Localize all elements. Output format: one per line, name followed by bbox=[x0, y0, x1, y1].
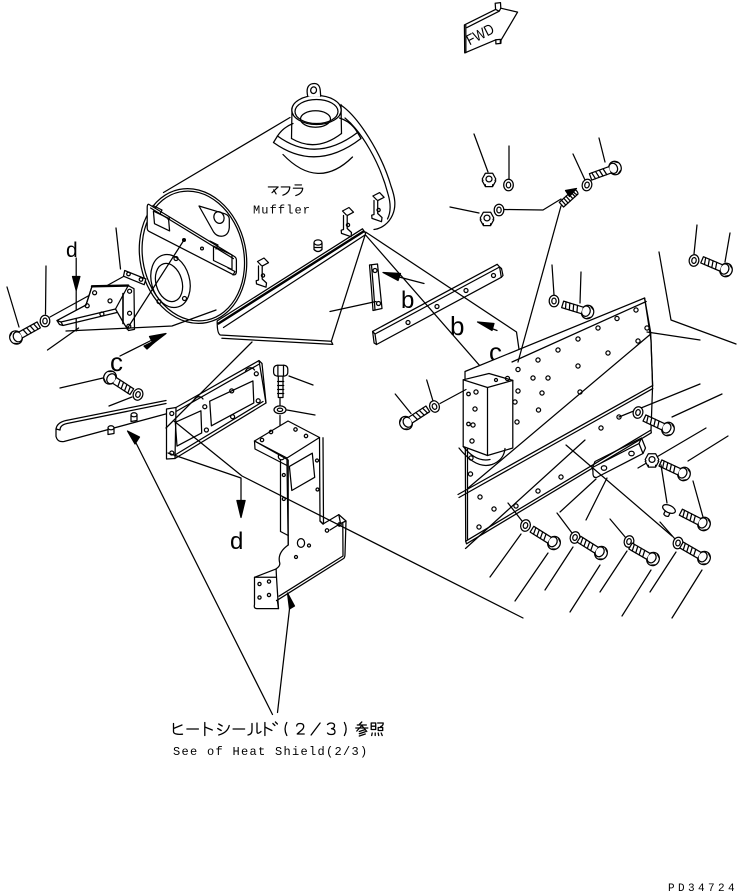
svg-text:d: d bbox=[230, 528, 243, 555]
svg-text:PD34724: PD34724 bbox=[668, 883, 737, 892]
svg-text:See of Heat Shield(2/3): See of Heat Shield(2/3) bbox=[173, 745, 369, 759]
svg-text:b: b bbox=[450, 311, 464, 341]
svg-text:Muffler: Muffler bbox=[253, 204, 311, 218]
